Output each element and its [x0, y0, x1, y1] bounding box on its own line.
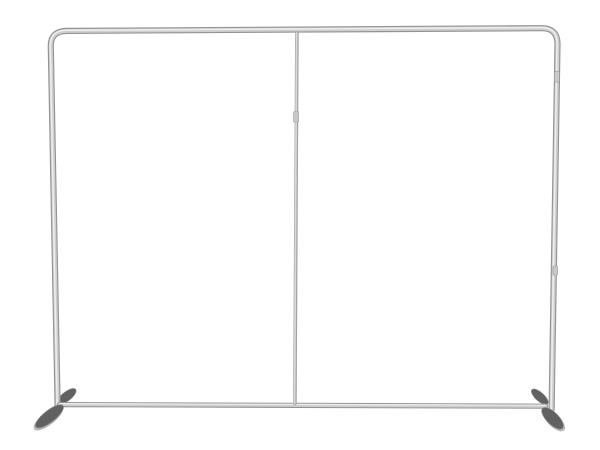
- center-pole: [294, 33, 299, 404]
- outer-frame-tube: [50, 27, 557, 409]
- product-photo: [0, 0, 600, 450]
- right-upright-joint-upper: [554, 71, 559, 82]
- outer-frame-tube-shadow-edge: [51, 28, 558, 409]
- left-foot-front-lobe: [32, 401, 66, 431]
- outer-frame-tube-highlight: [50, 27, 557, 408]
- bottom-crossbar: [60, 404, 546, 407]
- left-foot-front: [30, 401, 66, 434]
- outer-frame-tube-body: [51, 28, 558, 409]
- center-pole-joint: [294, 112, 299, 123]
- right-upright-joint-lower: [553, 266, 558, 275]
- backdrop-frame-illustration: [0, 0, 600, 450]
